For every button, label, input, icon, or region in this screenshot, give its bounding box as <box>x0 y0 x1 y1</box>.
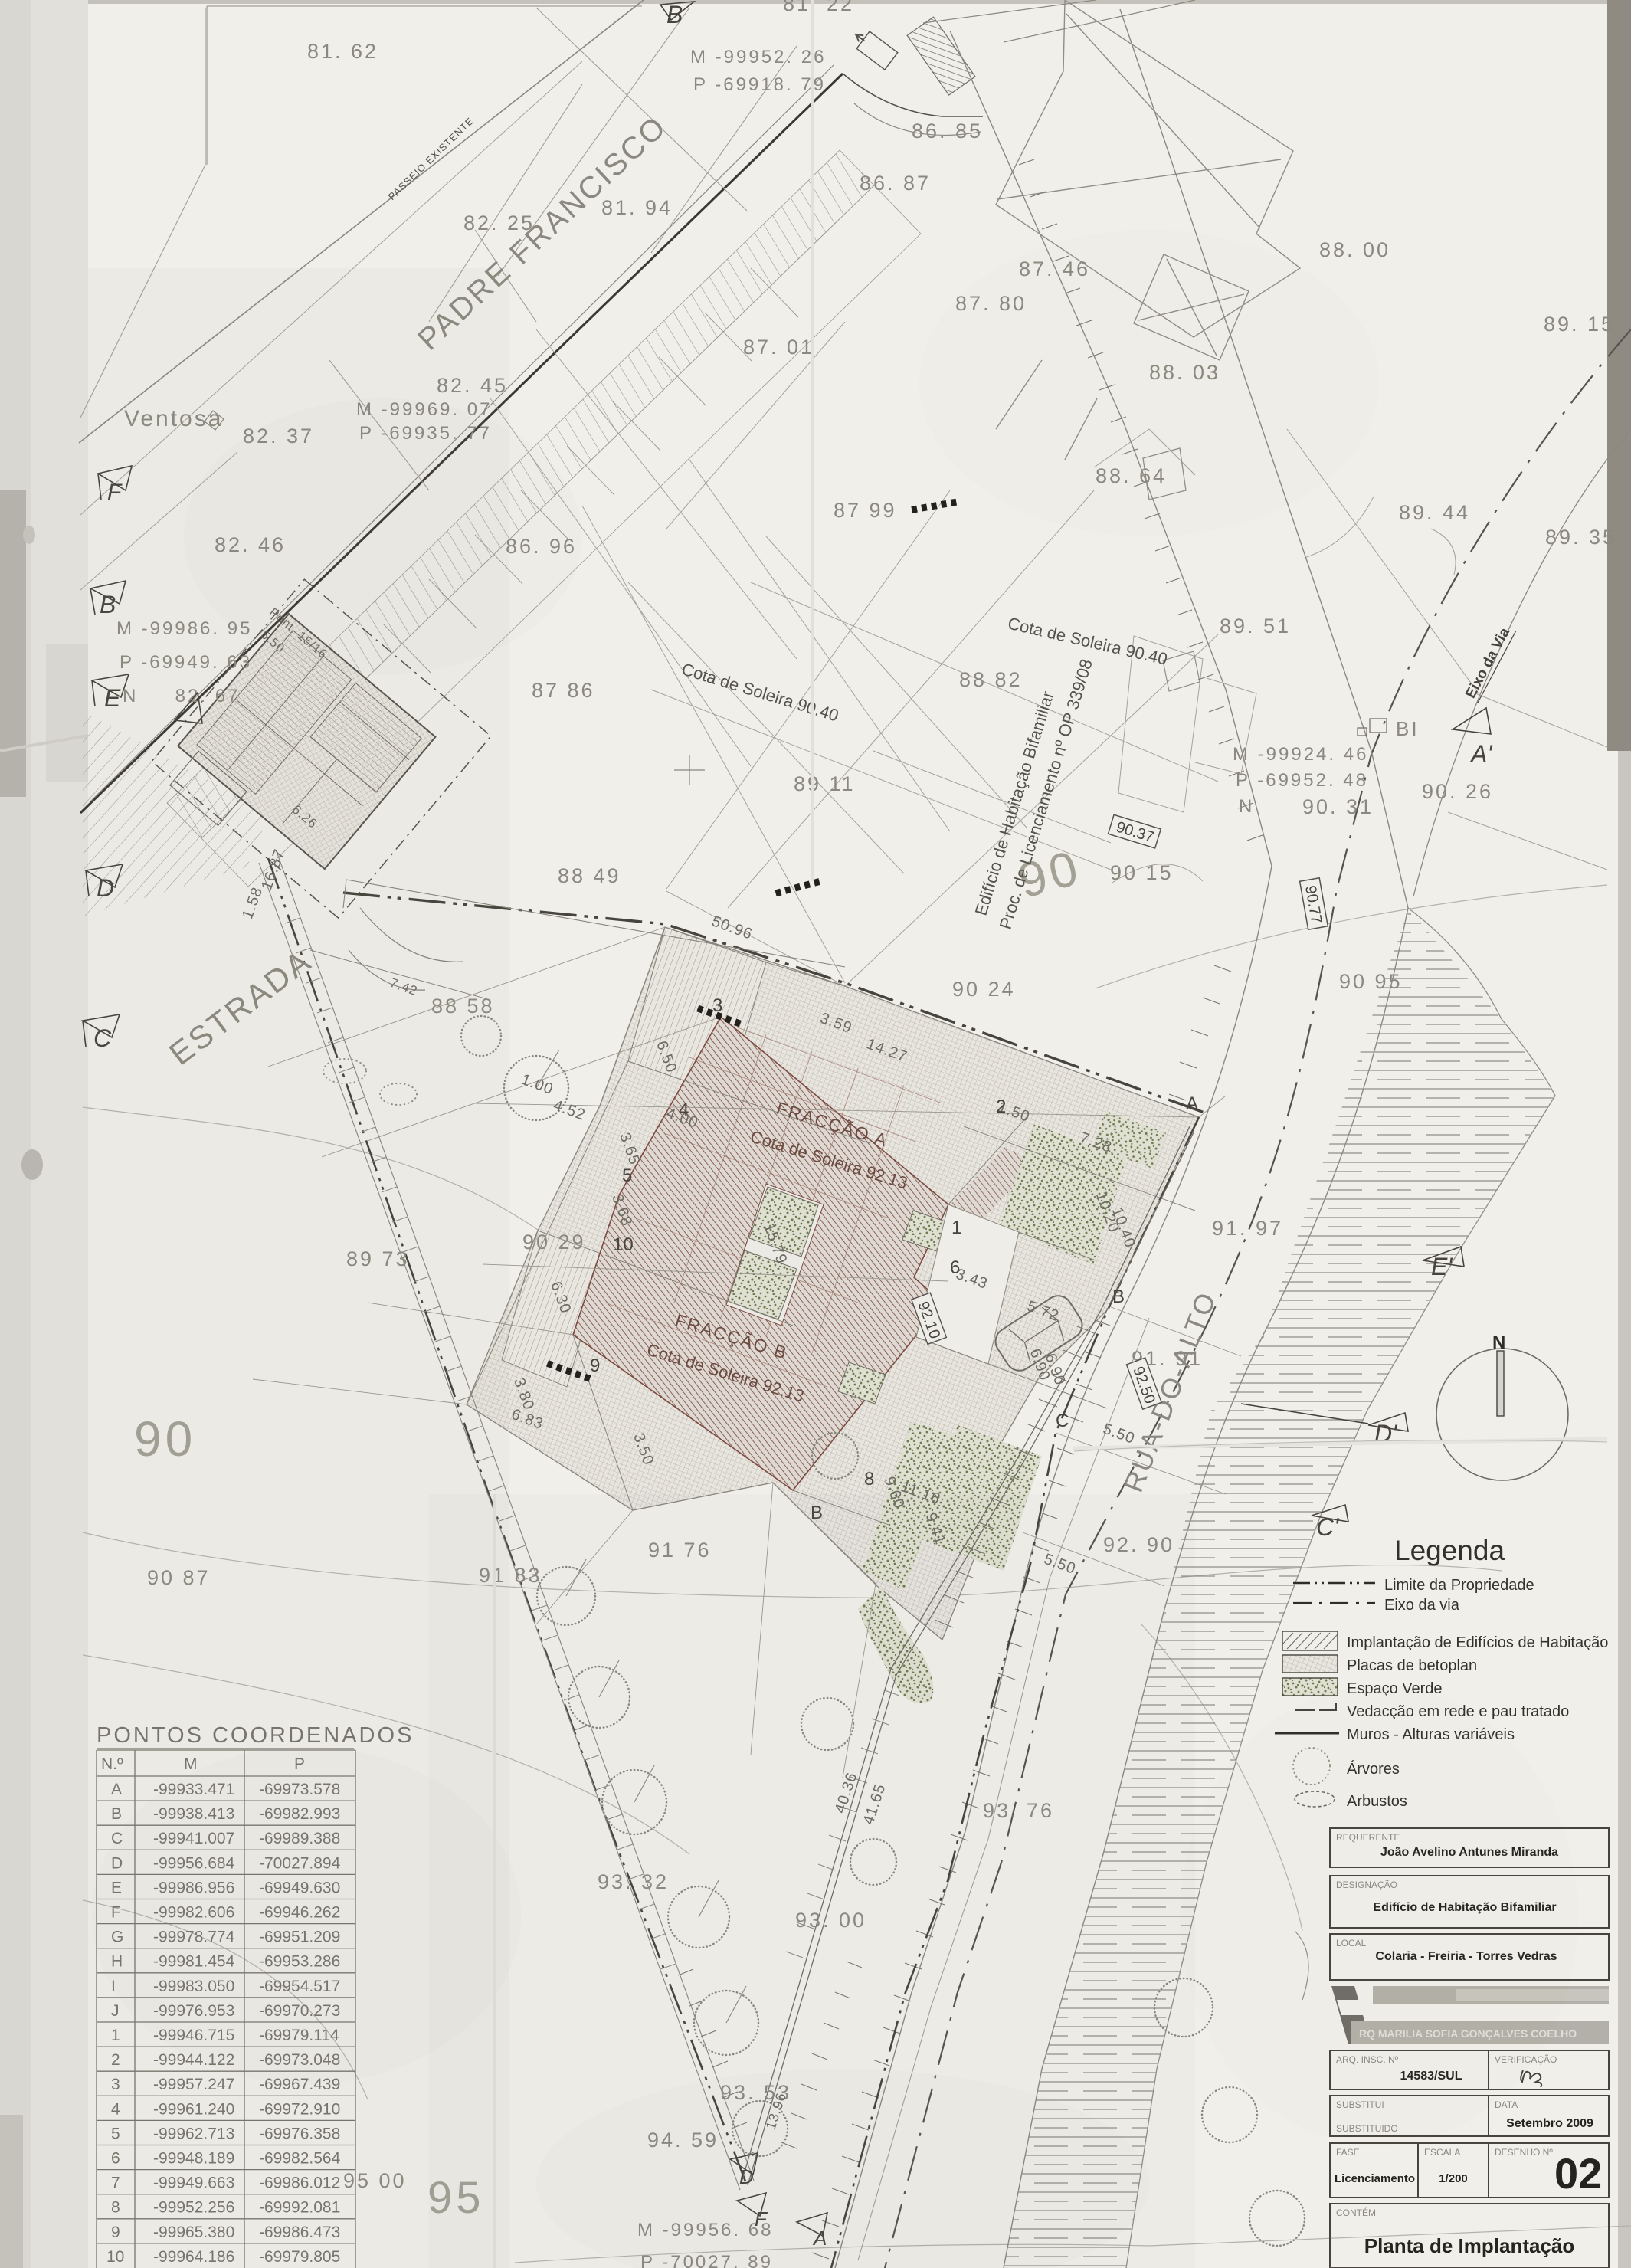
svg-text:89. 44: 89. 44 <box>1399 501 1470 524</box>
svg-text:81. 62: 81. 62 <box>307 40 378 63</box>
svg-text:P -69952. 48: P -69952. 48 <box>1236 770 1368 791</box>
svg-text:E': E' <box>1431 1253 1453 1280</box>
svg-text:10: 10 <box>613 1234 634 1255</box>
svg-text:Limite da Propriedade: Limite da Propriedade <box>1384 1577 1534 1594</box>
svg-text:02: 02 <box>1554 2149 1602 2198</box>
svg-text:C': C' <box>1316 1513 1340 1541</box>
svg-text:81. 22: 81. 22 <box>783 0 854 15</box>
svg-text:1/200: 1/200 <box>1439 2172 1468 2185</box>
svg-text:ESCALA: ESCALA <box>1424 2147 1460 2158</box>
svg-text:88 49: 88 49 <box>558 864 621 887</box>
svg-text:88 82: 88 82 <box>959 668 1023 691</box>
svg-text:Eixo da via: Eixo da via <box>1384 1597 1460 1614</box>
svg-text:N: N <box>1239 796 1254 817</box>
svg-text:81. 94: 81. 94 <box>601 196 673 219</box>
svg-text:Licenciamento: Licenciamento <box>1335 2172 1415 2185</box>
svg-text:91. 97: 91. 97 <box>1212 1217 1283 1240</box>
svg-text:90 29: 90 29 <box>522 1231 586 1254</box>
svg-text:Implantação de Edifícios de Ha: Implantação de Edifícios de Habitação <box>1347 1634 1608 1651</box>
svg-text:Setembro 2009: Setembro 2009 <box>1506 2117 1593 2130</box>
svg-text:89. 35: 89. 35 <box>1545 526 1616 549</box>
svg-text:90 24: 90 24 <box>952 978 1016 1001</box>
svg-text:Planta de Implantação: Planta de Implantação <box>1364 2234 1575 2257</box>
svg-text:N: N <box>1492 1332 1505 1353</box>
svg-text:4: 4 <box>679 1100 689 1120</box>
svg-text:86. 85: 86. 85 <box>912 120 983 143</box>
svg-text:89 11: 89 11 <box>794 772 856 795</box>
svg-text:P -69918. 79: P -69918. 79 <box>693 74 826 95</box>
svg-text:89. 15: 89. 15 <box>1544 313 1615 336</box>
svg-text:M -99924. 46: M -99924. 46 <box>1233 744 1368 765</box>
svg-text:87. 01: 87. 01 <box>743 336 814 359</box>
svg-text:1: 1 <box>951 1218 961 1238</box>
svg-text:B: B <box>666 1 683 28</box>
svg-text:87 86: 87 86 <box>532 679 595 702</box>
svg-text:8: 8 <box>864 1469 874 1490</box>
svg-text:90 95: 90 95 <box>1339 970 1403 993</box>
svg-text:90. 31: 90. 31 <box>1302 795 1374 818</box>
svg-text:M -99952. 26: M -99952. 26 <box>690 47 826 67</box>
svg-text:BI: BI <box>1396 717 1420 740</box>
svg-text:C: C <box>1056 1411 1069 1431</box>
svg-text:87 99: 87 99 <box>834 499 897 522</box>
svg-text:9: 9 <box>590 1355 600 1376</box>
svg-text:Legenda: Legenda <box>1394 1535 1505 1566</box>
svg-text:88. 00: 88. 00 <box>1319 238 1390 261</box>
svg-text:Placas de betoplan: Placas de betoplan <box>1347 1657 1477 1674</box>
svg-text:A': A' <box>1469 740 1493 768</box>
svg-text:86. 87: 86. 87 <box>860 172 931 195</box>
svg-text:89. 51: 89. 51 <box>1220 615 1291 637</box>
svg-text:90. 26: 90. 26 <box>1422 780 1493 803</box>
svg-text:B: B <box>1112 1286 1125 1307</box>
svg-text:CONTÉM: CONTÉM <box>1336 2207 1376 2218</box>
svg-text:90 15: 90 15 <box>1110 861 1174 884</box>
svg-text:DESENHO Nº: DESENHO Nº <box>1495 2147 1553 2158</box>
svg-text:2: 2 <box>996 1096 1006 1117</box>
svg-text:A: A <box>1186 1093 1198 1114</box>
svg-text:FASE: FASE <box>1336 2147 1360 2158</box>
svg-text:DATA: DATA <box>1495 2099 1518 2110</box>
svg-text:6: 6 <box>950 1257 960 1278</box>
svg-text:5: 5 <box>622 1165 632 1186</box>
svg-text:3: 3 <box>712 995 722 1016</box>
